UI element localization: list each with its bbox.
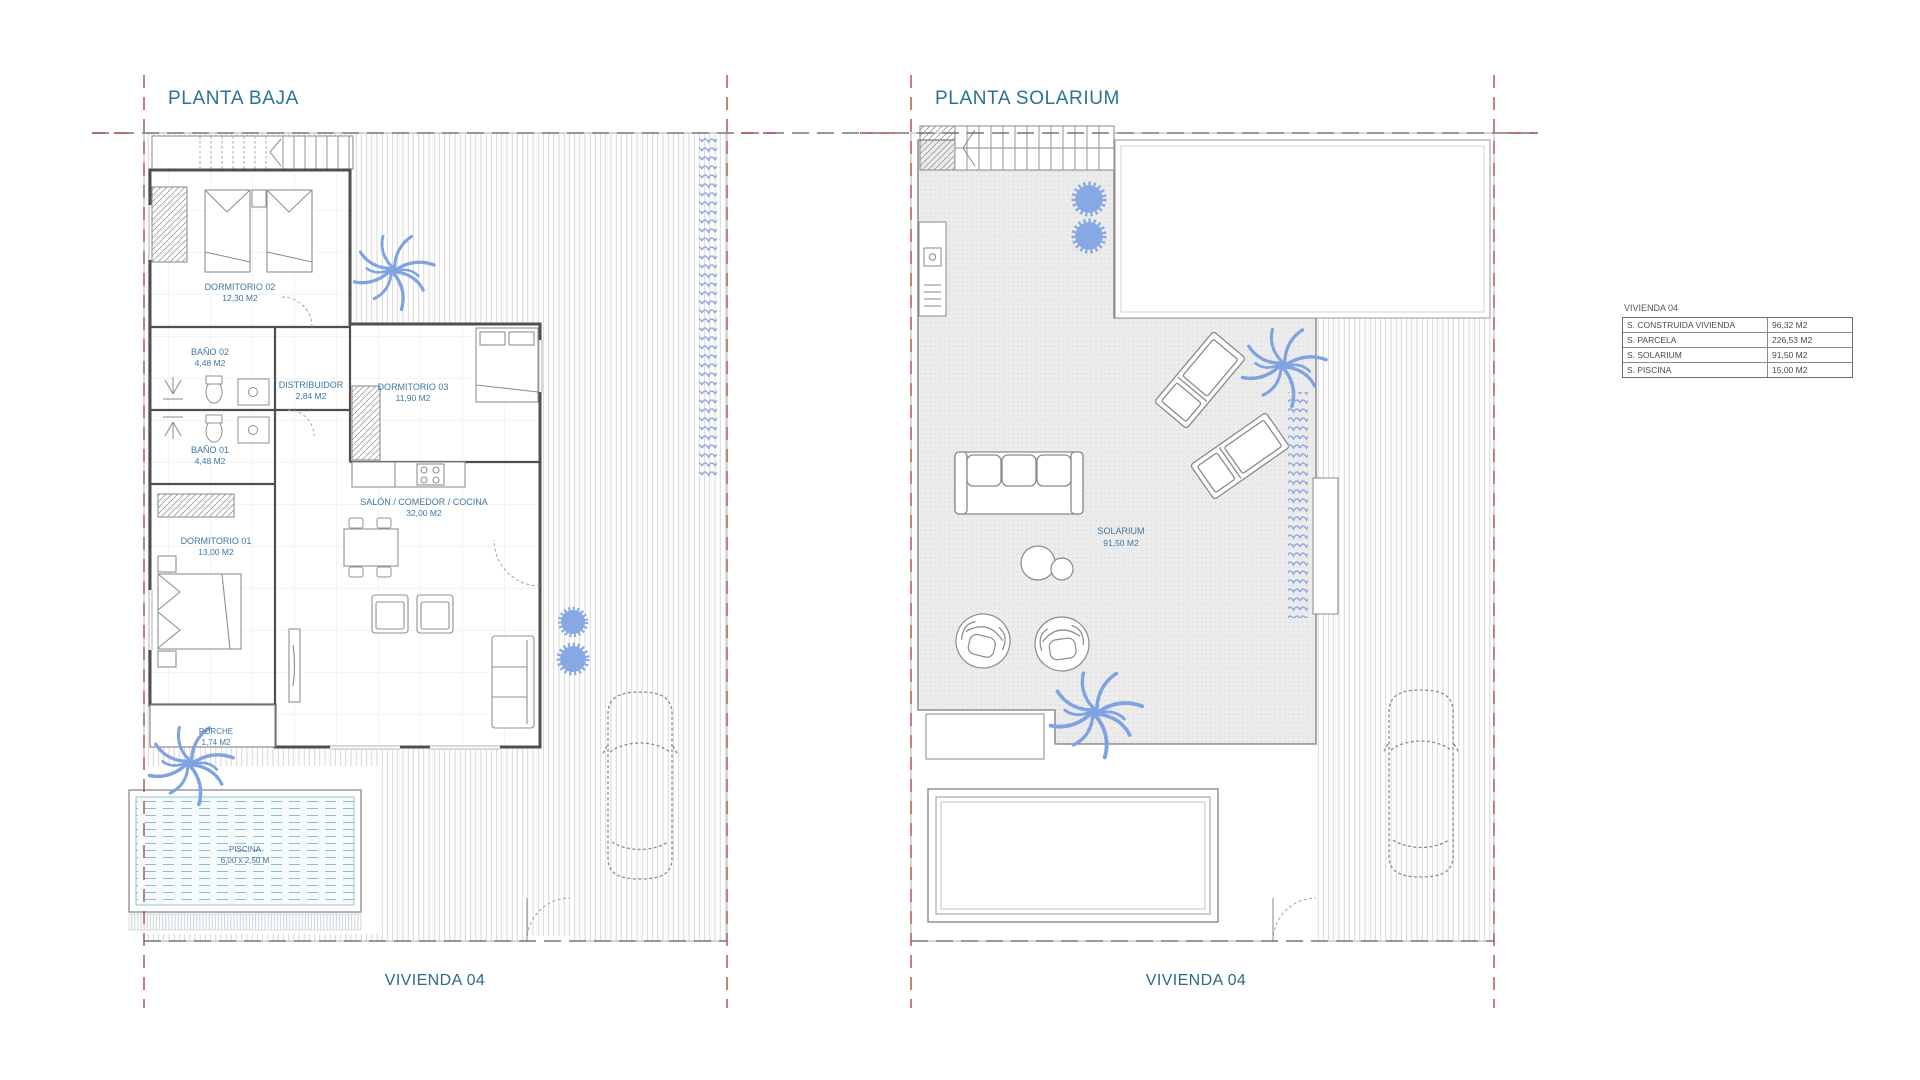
table-row: S. PARCELA 226,53 M2 [1623, 333, 1852, 348]
left-plan-title: PLANTA BAJA [168, 88, 299, 110]
row-label: S. PISCINA [1623, 365, 1767, 375]
nightstand [158, 651, 176, 667]
summary-table: VIVIENDA 04 S. CONSTRUIDA VIVIENDA 96,32… [1622, 303, 1853, 378]
deck-step [926, 714, 1044, 759]
area-porche: 1,74 M2 [202, 738, 231, 747]
bush-icon [1075, 185, 1103, 213]
dim-piscina: 6,00 x 2,50 M [221, 856, 270, 865]
label-piscina: PISCINA [229, 845, 262, 854]
driveway-hatch [1316, 318, 1494, 941]
sofa [492, 636, 534, 728]
side-table [1051, 558, 1073, 580]
label-dormitorio03: DORMITORIO 03 [378, 382, 449, 392]
row-label: S. SOLARIUM [1623, 350, 1767, 360]
floorplan-sheet: DORMITORIO 02 12,30 M2 BAÑO 02 4,48 M2 B… [0, 0, 1920, 1080]
dormitorio02-furniture [152, 187, 312, 272]
wardrobe [152, 187, 187, 262]
armchair [372, 595, 408, 633]
left-plan-footer: VIVIENDA 04 [325, 972, 545, 990]
area-dormitorio01: 13,00 M2 [198, 547, 234, 557]
label-distribuidor: DISTRIBUIDOR [279, 380, 344, 390]
planta-solarium-plan: SOLARIUM 91,50 M2 [911, 126, 1494, 945]
hedge-icon [699, 137, 717, 479]
row-value: 15,00 M2 [1767, 363, 1852, 377]
area-solarium: 91,50 M2 [1103, 538, 1139, 548]
hedge-icon [1288, 392, 1308, 618]
row-value: 91,50 M2 [1767, 348, 1852, 362]
nightstand [158, 556, 176, 572]
label-bano01: BAÑO 01 [191, 445, 229, 455]
wardrobe [352, 386, 380, 460]
armchair [417, 595, 453, 633]
summary-table-grid: S. CONSTRUIDA VIVIENDA 96,32 M2 S. PARCE… [1622, 317, 1853, 378]
single-bed [267, 190, 312, 272]
pool-right [928, 789, 1218, 922]
table-row: S. CONSTRUIDA VIVIENDA 96,32 M2 [1623, 318, 1852, 333]
entry-stairs [152, 136, 353, 169]
planta-baja-plan: DORMITORIO 02 12,30 M2 BAÑO 02 4,48 M2 B… [114, 133, 727, 945]
kitchen [352, 462, 465, 487]
right-plan-title: PLANTA SOLARIUM [935, 88, 1120, 110]
area-dormitorio03: 11,90 M2 [396, 393, 431, 403]
row-value: 226,53 M2 [1767, 333, 1852, 347]
right-plan-footer: VIVIENDA 04 [1086, 972, 1306, 990]
outdoor-sofa [955, 452, 1083, 514]
nightstand [252, 190, 266, 207]
table-row: S. PISCINA 15,00 M2 [1623, 363, 1852, 377]
area-bano01: 4,48 M2 [195, 456, 226, 466]
single-bed [205, 190, 250, 272]
bush-icon [560, 646, 586, 672]
kitchen-counter [352, 462, 465, 487]
bush-icon [1075, 222, 1103, 250]
area-dormitorio02: 12,30 M2 [222, 293, 258, 303]
row-label: S. CONSTRUIDA VIVIENDA [1623, 320, 1767, 330]
label-salon: SALÓN / COMEDOR / COCINA [360, 497, 488, 507]
area-salon: 32,00 M2 [406, 508, 442, 518]
label-porche: PORCHE [199, 727, 233, 736]
row-value: 96,32 M2 [1767, 318, 1852, 332]
label-dormitorio02: DORMITORIO 02 [205, 282, 276, 292]
label-dormitorio01: DORMITORIO 01 [181, 536, 252, 546]
area-distribuidor: 2,84 M2 [296, 391, 327, 401]
plans-drawing: DORMITORIO 02 12,30 M2 BAÑO 02 4,48 M2 B… [0, 0, 1920, 1080]
table-row: S. SOLARIUM 91,50 M2 [1623, 348, 1852, 363]
dining-table [344, 529, 398, 566]
coffee-table [1021, 546, 1055, 580]
label-bano02: BAÑO 02 [191, 347, 229, 357]
bush-icon [561, 610, 585, 634]
void-open-area [1115, 140, 1490, 318]
label-solarium: SOLARIUM [1097, 526, 1144, 536]
wardrobe [158, 494, 234, 517]
planter [1313, 478, 1338, 614]
area-bano02: 4,48 M2 [195, 358, 226, 368]
outdoor-kitchen [919, 222, 946, 316]
row-label: S. PARCELA [1623, 335, 1767, 345]
summary-table-title: VIVIENDA 04 [1624, 303, 1853, 313]
